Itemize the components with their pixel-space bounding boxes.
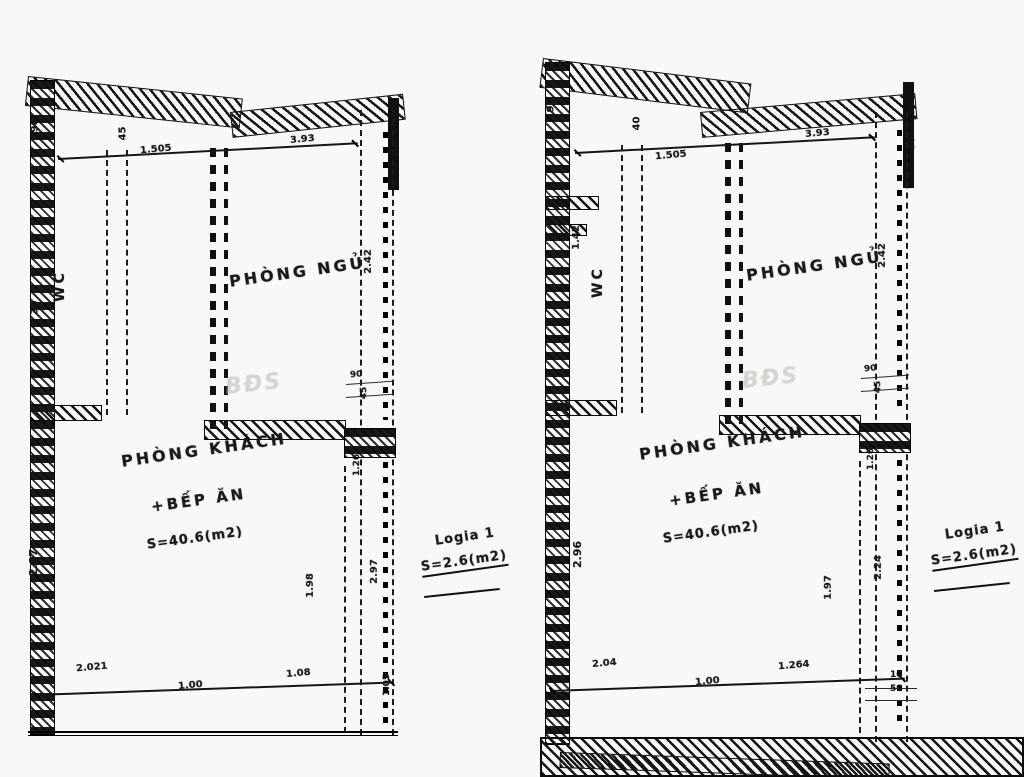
dimension-label: 2.021: [76, 661, 108, 675]
bedroom-partition: [725, 143, 731, 430]
dimension-label: 1.26: [866, 448, 876, 470]
wc-partition-dashed: [641, 145, 643, 413]
wc-partition-dashed: [126, 150, 128, 415]
logia-name-label: Logia 1: [434, 526, 496, 549]
dimension-label: 2.42: [363, 249, 374, 274]
wc-label: WC: [590, 266, 606, 298]
dimension-label: 1.05: [382, 674, 392, 696]
dimension-label: 2.96: [571, 541, 584, 568]
dimension-label: 1.00: [178, 679, 204, 692]
logia-divider-dashed: [859, 461, 861, 733]
dimension-tick: [57, 155, 65, 163]
living-label-line2: +BẾP ĂN: [668, 479, 765, 510]
dimension-label: 30: [907, 137, 917, 150]
dimension-label: 30: [391, 111, 401, 124]
bedroom-label: PHÒNG NGỦ: [745, 247, 884, 285]
watermark: BĐS: [741, 363, 801, 394]
dimension-label: 30: [907, 103, 917, 116]
logia-area-label: S=2.6(m2): [420, 548, 508, 578]
living-area-label: S=40.6(m2): [146, 525, 244, 553]
dimension-label: 2.97: [369, 559, 380, 584]
dimension-label: 30: [391, 145, 401, 158]
bedroom-label: PHÒNG NGỦ: [228, 253, 367, 291]
floor-plan-canvas: PHÒNG NGỦ WC PHÒNG KHÁCH +BẾP ĂN S=40.6(…: [0, 0, 1024, 777]
window-dashed-line: [360, 110, 362, 735]
dimension-label: 1.26: [352, 454, 362, 476]
watermark: BĐS: [224, 369, 284, 400]
dimension-label: 40: [631, 117, 642, 131]
wall-stub: [545, 400, 617, 416]
wall-top-right-band: [230, 94, 406, 138]
dimension-label: 50: [890, 684, 903, 694]
logia-divider-dashed: [344, 466, 346, 733]
dimension-label: 1.264: [778, 659, 810, 673]
wall-top-left-band: [539, 58, 751, 113]
dimension-label: 1.42: [571, 225, 582, 250]
dimension-label: 2.87: [27, 549, 40, 576]
window-dashed-line: [392, 110, 394, 735]
dimension-label: 2.42: [877, 243, 888, 268]
bedroom-partition: [210, 148, 216, 433]
wall-stub: [545, 196, 599, 210]
window-mullion-marks: [383, 132, 388, 420]
dimension-label: 1.97: [823, 575, 834, 600]
dimension-label: 3.93: [805, 127, 831, 140]
dimension-line-bottom: [34, 681, 394, 696]
dimension-tick: [351, 140, 359, 148]
dimension-line-right: [865, 700, 917, 701]
dimension-label: 90: [864, 363, 877, 374]
wc-label: WC: [52, 270, 68, 302]
dimension-label: 45: [873, 381, 883, 394]
dimension-label: 2.04: [592, 657, 618, 670]
dimension-tick: [574, 149, 582, 157]
dimension-label: 10: [890, 670, 903, 680]
dimension-label: 45: [117, 127, 128, 141]
logia-area-label: S=2.6(m2): [930, 542, 1018, 572]
dimension-label: 1.505: [140, 143, 172, 157]
living-area-label: S=40.6(m2): [662, 519, 760, 547]
dimension-line-top: [58, 142, 358, 160]
dimension-line-bottom: [550, 678, 905, 692]
wall-stub: [30, 405, 102, 421]
dimension-label: 90: [29, 119, 40, 133]
wall-bottom-line: [28, 731, 398, 736]
dimension-label: 90: [350, 369, 363, 380]
dimension-label: 3.93: [290, 133, 316, 146]
dimension-label: 1.98: [305, 573, 316, 598]
wall-corner-block: [903, 82, 914, 188]
dimension-label: 30: [29, 301, 40, 315]
logia-name-label: Logia 1: [944, 520, 1006, 543]
dimension-label: 90: [545, 99, 556, 113]
dimension-label: 1.505: [655, 149, 687, 163]
dimension-label: 45: [359, 387, 369, 400]
living-label-line2: +BẾP ĂN: [150, 485, 247, 516]
logia-label-underline: [424, 588, 500, 598]
window-mullion-marks: [897, 130, 902, 412]
dimension-label: 1.08: [286, 667, 312, 680]
logia-label-underline: [934, 582, 1010, 592]
wall-top-left-band: [25, 76, 243, 128]
wc-partition-dashed: [621, 145, 623, 413]
dimension-label: 1.00: [695, 675, 721, 688]
dimension-label: 2.24: [873, 555, 884, 580]
wc-partition-dashed: [106, 150, 108, 415]
